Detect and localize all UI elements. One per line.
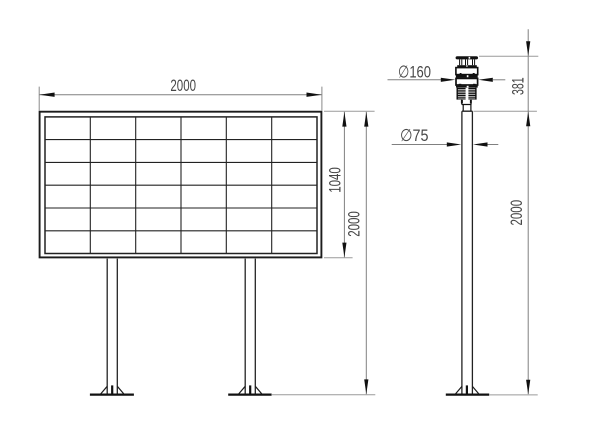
svg-text:2000: 2000 <box>344 211 363 237</box>
svg-text:∅160: ∅160 <box>398 62 431 81</box>
svg-text:2000: 2000 <box>170 76 196 95</box>
svg-text:2000: 2000 <box>507 200 526 226</box>
svg-text:1040: 1040 <box>326 167 345 193</box>
svg-text:381: 381 <box>509 77 528 95</box>
svg-text:∅75: ∅75 <box>400 126 429 145</box>
